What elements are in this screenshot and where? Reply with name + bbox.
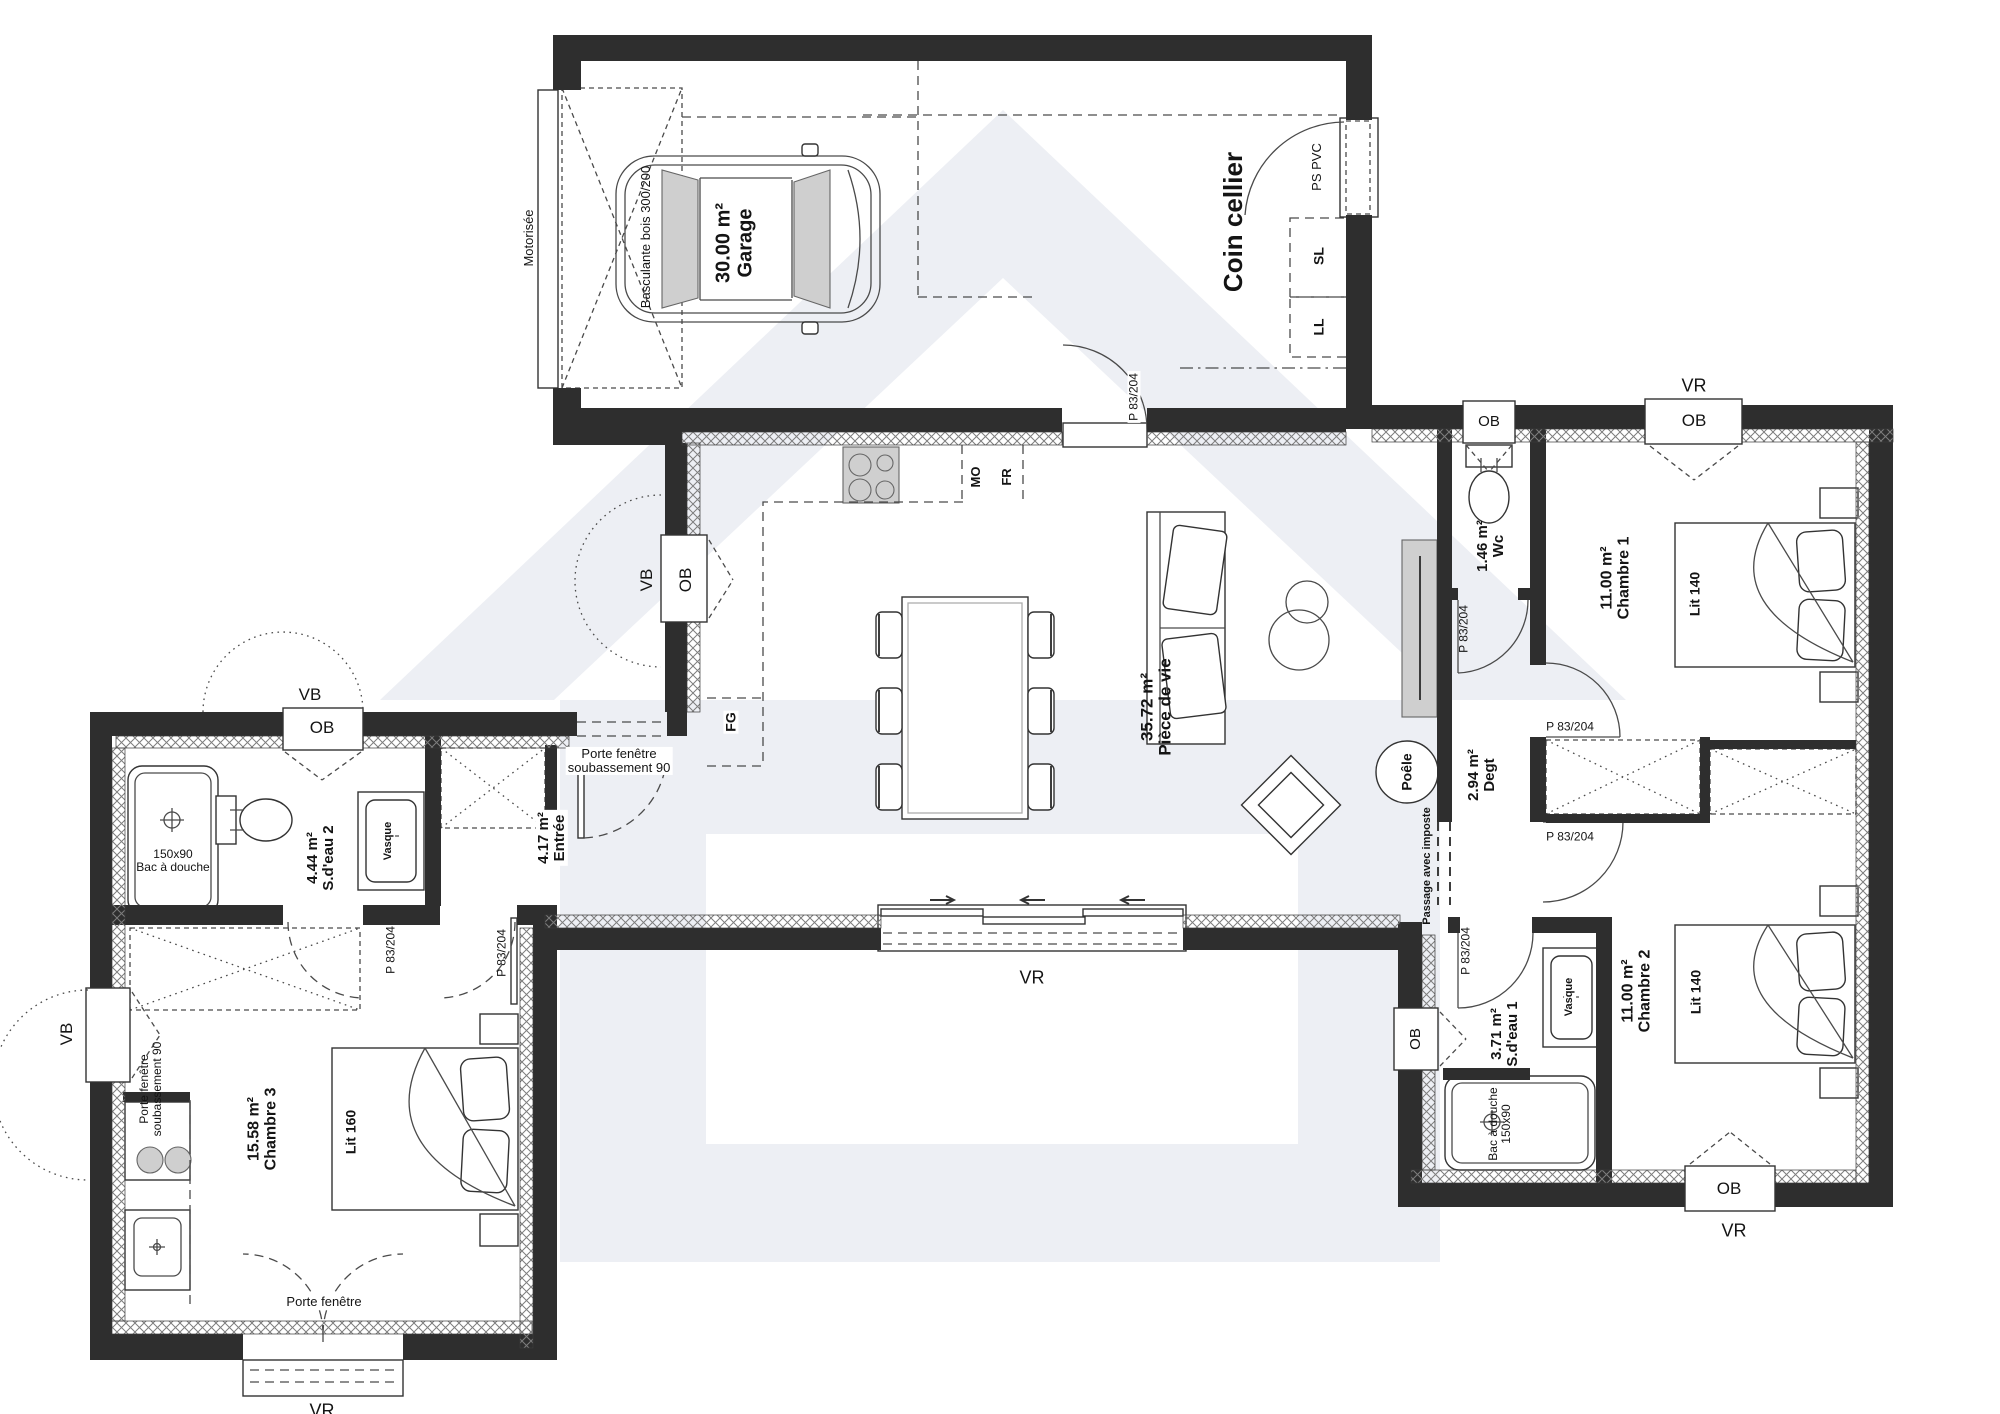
wc-toilet	[1466, 445, 1512, 523]
room-label-chambre2: 11.00 m²Chambre 2	[1620, 948, 1655, 1035]
window-ob-sdeau1-label: OB	[1408, 1026, 1424, 1052]
door-size-sdeau2: P 83/204	[385, 924, 398, 976]
sink-label-sdeau2: Vasque	[383, 820, 395, 863]
window-ob-kitchen-label: OB	[677, 566, 695, 595]
freezer-label: FG	[723, 710, 738, 733]
room-label-garage: 30.00 m²Garage	[713, 201, 756, 285]
shower-label-sdeau1: Bac à douche150x90	[1487, 1085, 1513, 1162]
door-size-chambre2: P 83/204	[1544, 831, 1596, 844]
side-table	[1269, 581, 1329, 670]
door-size-chambre1: P 83/204	[1544, 721, 1596, 734]
door-size-sdeau1: P 83/204	[1460, 925, 1473, 977]
bed-label-chambre2: Lit 140	[1688, 968, 1703, 1016]
garage-door-motor-label: Motorisée	[522, 207, 536, 268]
washer-label: LL	[1311, 316, 1326, 337]
window-ob-chambre2-label: OB	[1715, 1180, 1744, 1198]
toilet-sdeau2	[216, 796, 292, 844]
bed-label-chambre3: Lit 160	[343, 1108, 358, 1156]
shower-sdeau1	[1445, 1076, 1595, 1170]
room-label-chambre1: 11.00 m²Chambre 1	[1599, 535, 1634, 622]
tv-sideboard	[1402, 540, 1437, 717]
garage-door-type-label: Basculante bois 300/200	[639, 164, 653, 310]
stove-label: Poêle	[1399, 751, 1414, 792]
microwave-label: MO	[969, 465, 983, 490]
dining-table	[902, 597, 1028, 819]
chambre3-door-label: Porte fenêtre	[284, 1295, 363, 1309]
entry-door-label: Porte fenêtresoubassement 90	[566, 747, 673, 775]
room-label-chambre3: 15.58 m²Chambre 3	[246, 1086, 281, 1173]
room-label-sdeau1: 3.71 m²S.d'eau 1	[1489, 999, 1521, 1068]
sink-label-sdeau1: Vasque	[1564, 976, 1576, 1019]
door-ps-pvc-label: PS PVC	[1310, 141, 1324, 193]
bay-window-vr	[878, 896, 1186, 951]
closet-entree	[441, 748, 545, 828]
window-ob-sdeau2-label: OB	[308, 719, 337, 737]
dressing-chambre3	[130, 928, 360, 1010]
room-label-degt: 2.94 m²Degt	[1466, 747, 1498, 803]
floor-plan-drawing	[0, 0, 2000, 1414]
shutter-vr-chambre1: VR	[1679, 376, 1708, 395]
room-label-entree: 4.17 m²Entrée	[536, 810, 568, 866]
fridge-label: FR	[1000, 466, 1014, 487]
wardrobe-chambre2	[1710, 749, 1856, 814]
door-size-chambre3: P 83/204	[496, 927, 509, 979]
door-size-wc: P 83/204	[1458, 603, 1471, 655]
wardrobe-chambre1	[1546, 740, 1700, 814]
shutter-vb-chambre3: VB	[58, 1021, 76, 1048]
shutter-vb-sdeau2: VB	[297, 686, 324, 704]
window-ob-sdeau1	[1394, 1008, 1466, 1070]
window-ob-wc-label: OB	[1476, 414, 1502, 430]
window-ob-chambre1-label: OB	[1680, 412, 1709, 430]
room-label-wc: 1.46 m²Wc	[1475, 518, 1507, 574]
window-ob-chambre2	[1685, 1132, 1775, 1211]
shutter-vr-chambre2: VR	[1719, 1221, 1748, 1240]
door-size-garage: P 83/204	[1128, 371, 1141, 423]
floor-plan: 30.00 m²Garage Basculante bois 300/200 M…	[0, 0, 2000, 1414]
shower-label-sdeau2: 150x90Bac à douche	[134, 848, 211, 874]
chambre3-window-door-label: Porte fenêtresoubassement 90	[138, 1040, 164, 1139]
dryer-label: SL	[1311, 245, 1326, 267]
room-label-sdeau2: 4.44 m²S.d'eau 2	[305, 823, 337, 892]
bed-label-chambre1: Lit 140	[1687, 570, 1702, 618]
passage-label: Passage avec imposte	[1422, 805, 1434, 926]
shutter-vb-kitchen: VB	[638, 567, 656, 594]
bed-chambre3	[332, 1014, 518, 1246]
door-sdeau2	[288, 922, 364, 998]
kitchen-hob	[843, 447, 899, 503]
shower-sdeau2	[128, 766, 218, 914]
shutter-vr-bay: VR	[1017, 968, 1046, 987]
room-label-piece-de-vie: 35.72 m²Pièce de vie	[1139, 656, 1176, 757]
window-ob-sdeau2	[203, 632, 363, 780]
room-label-cellier: Coin cellier	[1219, 150, 1247, 294]
shutter-vr-chambre3: VR	[307, 1401, 336, 1414]
